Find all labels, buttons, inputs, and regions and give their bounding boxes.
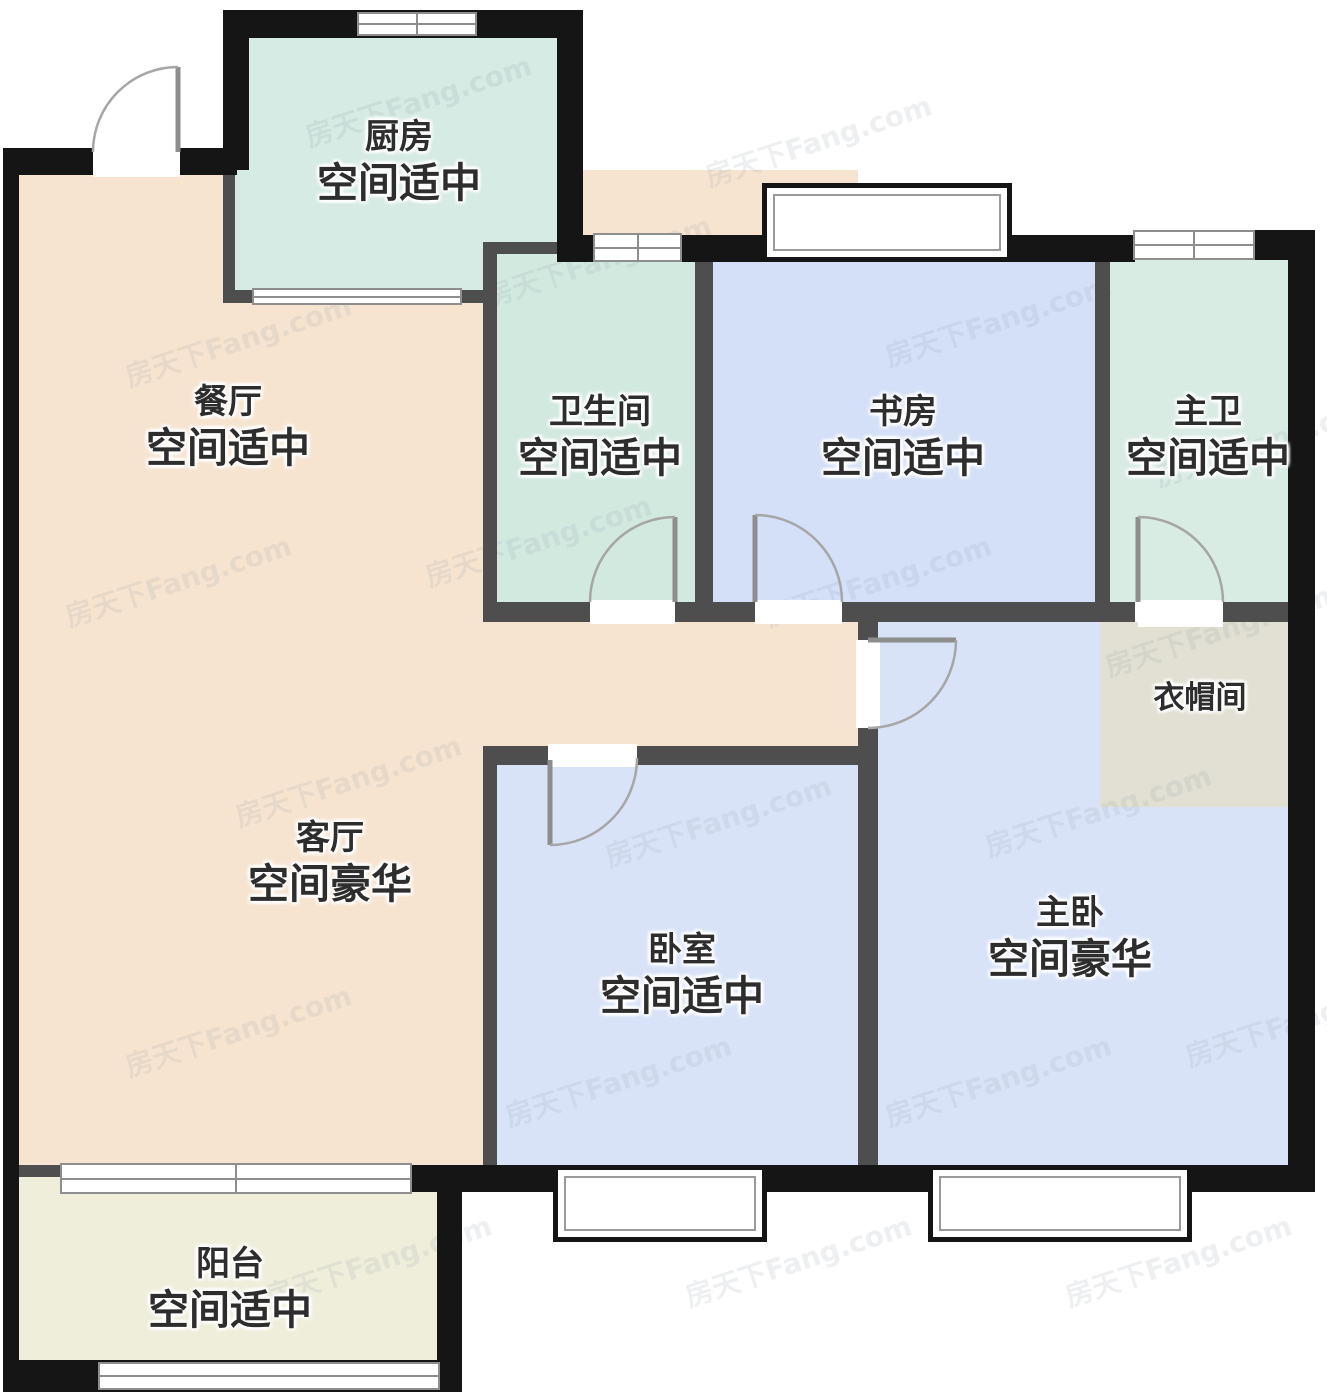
door-opening-master-bedroom xyxy=(856,640,880,728)
wall xyxy=(437,1165,462,1392)
wall xyxy=(637,746,865,765)
window xyxy=(252,288,462,305)
room-name: 书房 xyxy=(821,391,985,433)
room-name: 衣帽间 xyxy=(1154,677,1247,719)
room-status: 空间适中 xyxy=(148,1285,312,1335)
wall xyxy=(1288,230,1315,1192)
balcony-slider-window xyxy=(60,1163,412,1194)
wall xyxy=(557,10,583,262)
room-label-master-bedroom: 主卧 空间豪华 xyxy=(988,892,1152,984)
floor-plan: 房天下Fang.com房天下Fang.com房天下Fang.com房天下Fang… xyxy=(0,0,1327,1400)
wall xyxy=(483,746,497,1178)
window xyxy=(98,1362,440,1390)
window-mullion xyxy=(254,296,460,298)
wall xyxy=(483,602,590,622)
bay-window-study xyxy=(762,183,1012,262)
room-label-master-bath: 主卫 空间适中 xyxy=(1126,391,1290,483)
wall xyxy=(842,602,1135,622)
wall xyxy=(3,148,19,1392)
wall xyxy=(765,1165,930,1192)
wall xyxy=(17,1165,62,1177)
bay-window-bedroom xyxy=(553,1165,767,1242)
entry-door-arc xyxy=(93,67,178,152)
wall xyxy=(223,168,235,302)
wall xyxy=(675,602,755,622)
room-label-bedroom: 卧室 空间适中 xyxy=(600,929,764,1021)
wall xyxy=(1190,1165,1315,1192)
wall xyxy=(180,148,237,175)
window-frame xyxy=(564,1176,756,1231)
room-name: 餐厅 xyxy=(146,381,310,423)
room-name: 客厅 xyxy=(248,817,412,859)
room-label-kitchen: 厨房 空间适中 xyxy=(317,116,481,208)
room-status: 空间豪华 xyxy=(248,859,412,909)
door-opening-entry xyxy=(93,146,180,177)
room-status: 空间适中 xyxy=(600,971,764,1021)
window xyxy=(593,233,682,262)
room-name: 卧室 xyxy=(600,929,764,971)
wall xyxy=(858,728,878,1178)
room-label-balcony: 阳台 空间适中 xyxy=(148,1243,312,1335)
room-status: 空间适中 xyxy=(146,423,310,473)
wall xyxy=(858,602,878,640)
door-opening-bathroom xyxy=(590,600,675,624)
room-name: 主卫 xyxy=(1126,391,1290,433)
wall xyxy=(680,235,768,262)
door-opening-master-bath xyxy=(1138,600,1223,627)
window-frame xyxy=(939,1176,1181,1231)
wall xyxy=(568,235,595,262)
room-name: 阳台 xyxy=(148,1243,312,1285)
window-mullion xyxy=(1193,232,1195,258)
room-status: 空间适中 xyxy=(518,433,682,483)
wall xyxy=(223,10,249,170)
room-status: 空间豪华 xyxy=(988,934,1152,984)
room-status: 空间适中 xyxy=(317,158,481,208)
room-status: 空间适中 xyxy=(1126,433,1290,483)
room-name: 卫生间 xyxy=(518,391,682,433)
window xyxy=(1133,230,1255,260)
window xyxy=(357,12,477,36)
room-status: 空间适中 xyxy=(821,433,985,483)
bay-window-master-bedroom xyxy=(928,1165,1192,1242)
window-mullion xyxy=(416,14,418,34)
wall xyxy=(1223,602,1290,622)
room-label-living: 客厅 空间豪华 xyxy=(248,817,412,909)
window-mullion xyxy=(637,235,639,260)
wall xyxy=(1008,235,1135,262)
window-mullion xyxy=(100,1375,438,1377)
wall xyxy=(695,245,713,602)
room-label-dining: 餐厅 空间适中 xyxy=(146,381,310,473)
room-label-study: 书房 空间适中 xyxy=(821,391,985,483)
wall xyxy=(483,242,497,602)
room-label-closet: 衣帽间 xyxy=(1154,677,1247,719)
room-name: 主卧 xyxy=(988,892,1152,934)
window-mullion xyxy=(235,1165,237,1192)
wall xyxy=(1095,240,1110,602)
door-opening-study xyxy=(755,600,842,624)
room-name: 厨房 xyxy=(317,116,481,158)
room-label-bathroom: 卫生间 空间适中 xyxy=(518,391,682,483)
window-frame xyxy=(773,194,1001,251)
door-opening-bedroom xyxy=(548,744,637,767)
